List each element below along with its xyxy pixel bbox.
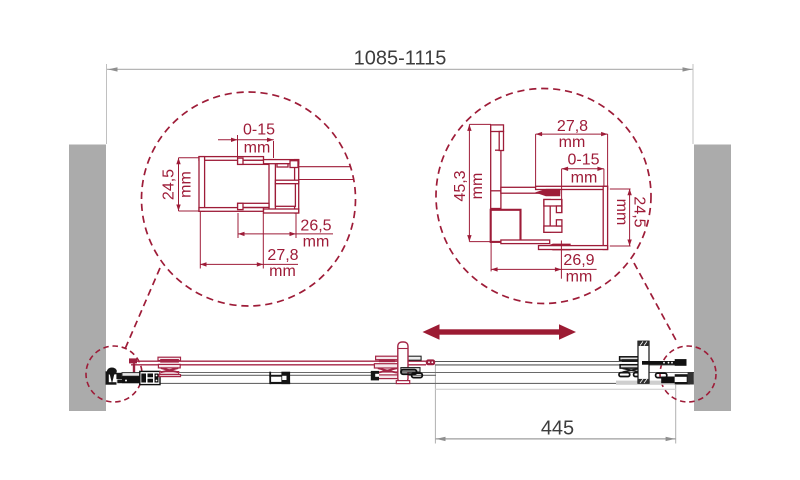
svg-text:445: 445 [541,418,574,440]
svg-text:1085-1115: 1085-1115 [354,48,447,70]
svg-text:mm: mm [178,171,195,198]
svg-text:27,8: 27,8 [557,118,588,135]
svg-text:0-15: 0-15 [243,122,275,139]
svg-text:0-15: 0-15 [567,151,599,168]
svg-text:mm: mm [269,263,296,280]
svg-text:mm: mm [244,140,271,157]
svg-text:mm: mm [469,173,486,200]
svg-text:mm: mm [613,199,630,226]
svg-text:mm: mm [571,169,598,186]
svg-text:45,3: 45,3 [452,170,469,201]
svg-text:mm: mm [566,268,593,285]
svg-text:27,8: 27,8 [267,247,298,264]
svg-text:24,5: 24,5 [630,196,647,227]
svg-text:mm: mm [559,134,586,151]
svg-text:24,5: 24,5 [161,169,178,200]
svg-text:26,5: 26,5 [300,218,331,235]
svg-text:26,9: 26,9 [563,252,594,269]
svg-text:mm: mm [303,234,330,251]
